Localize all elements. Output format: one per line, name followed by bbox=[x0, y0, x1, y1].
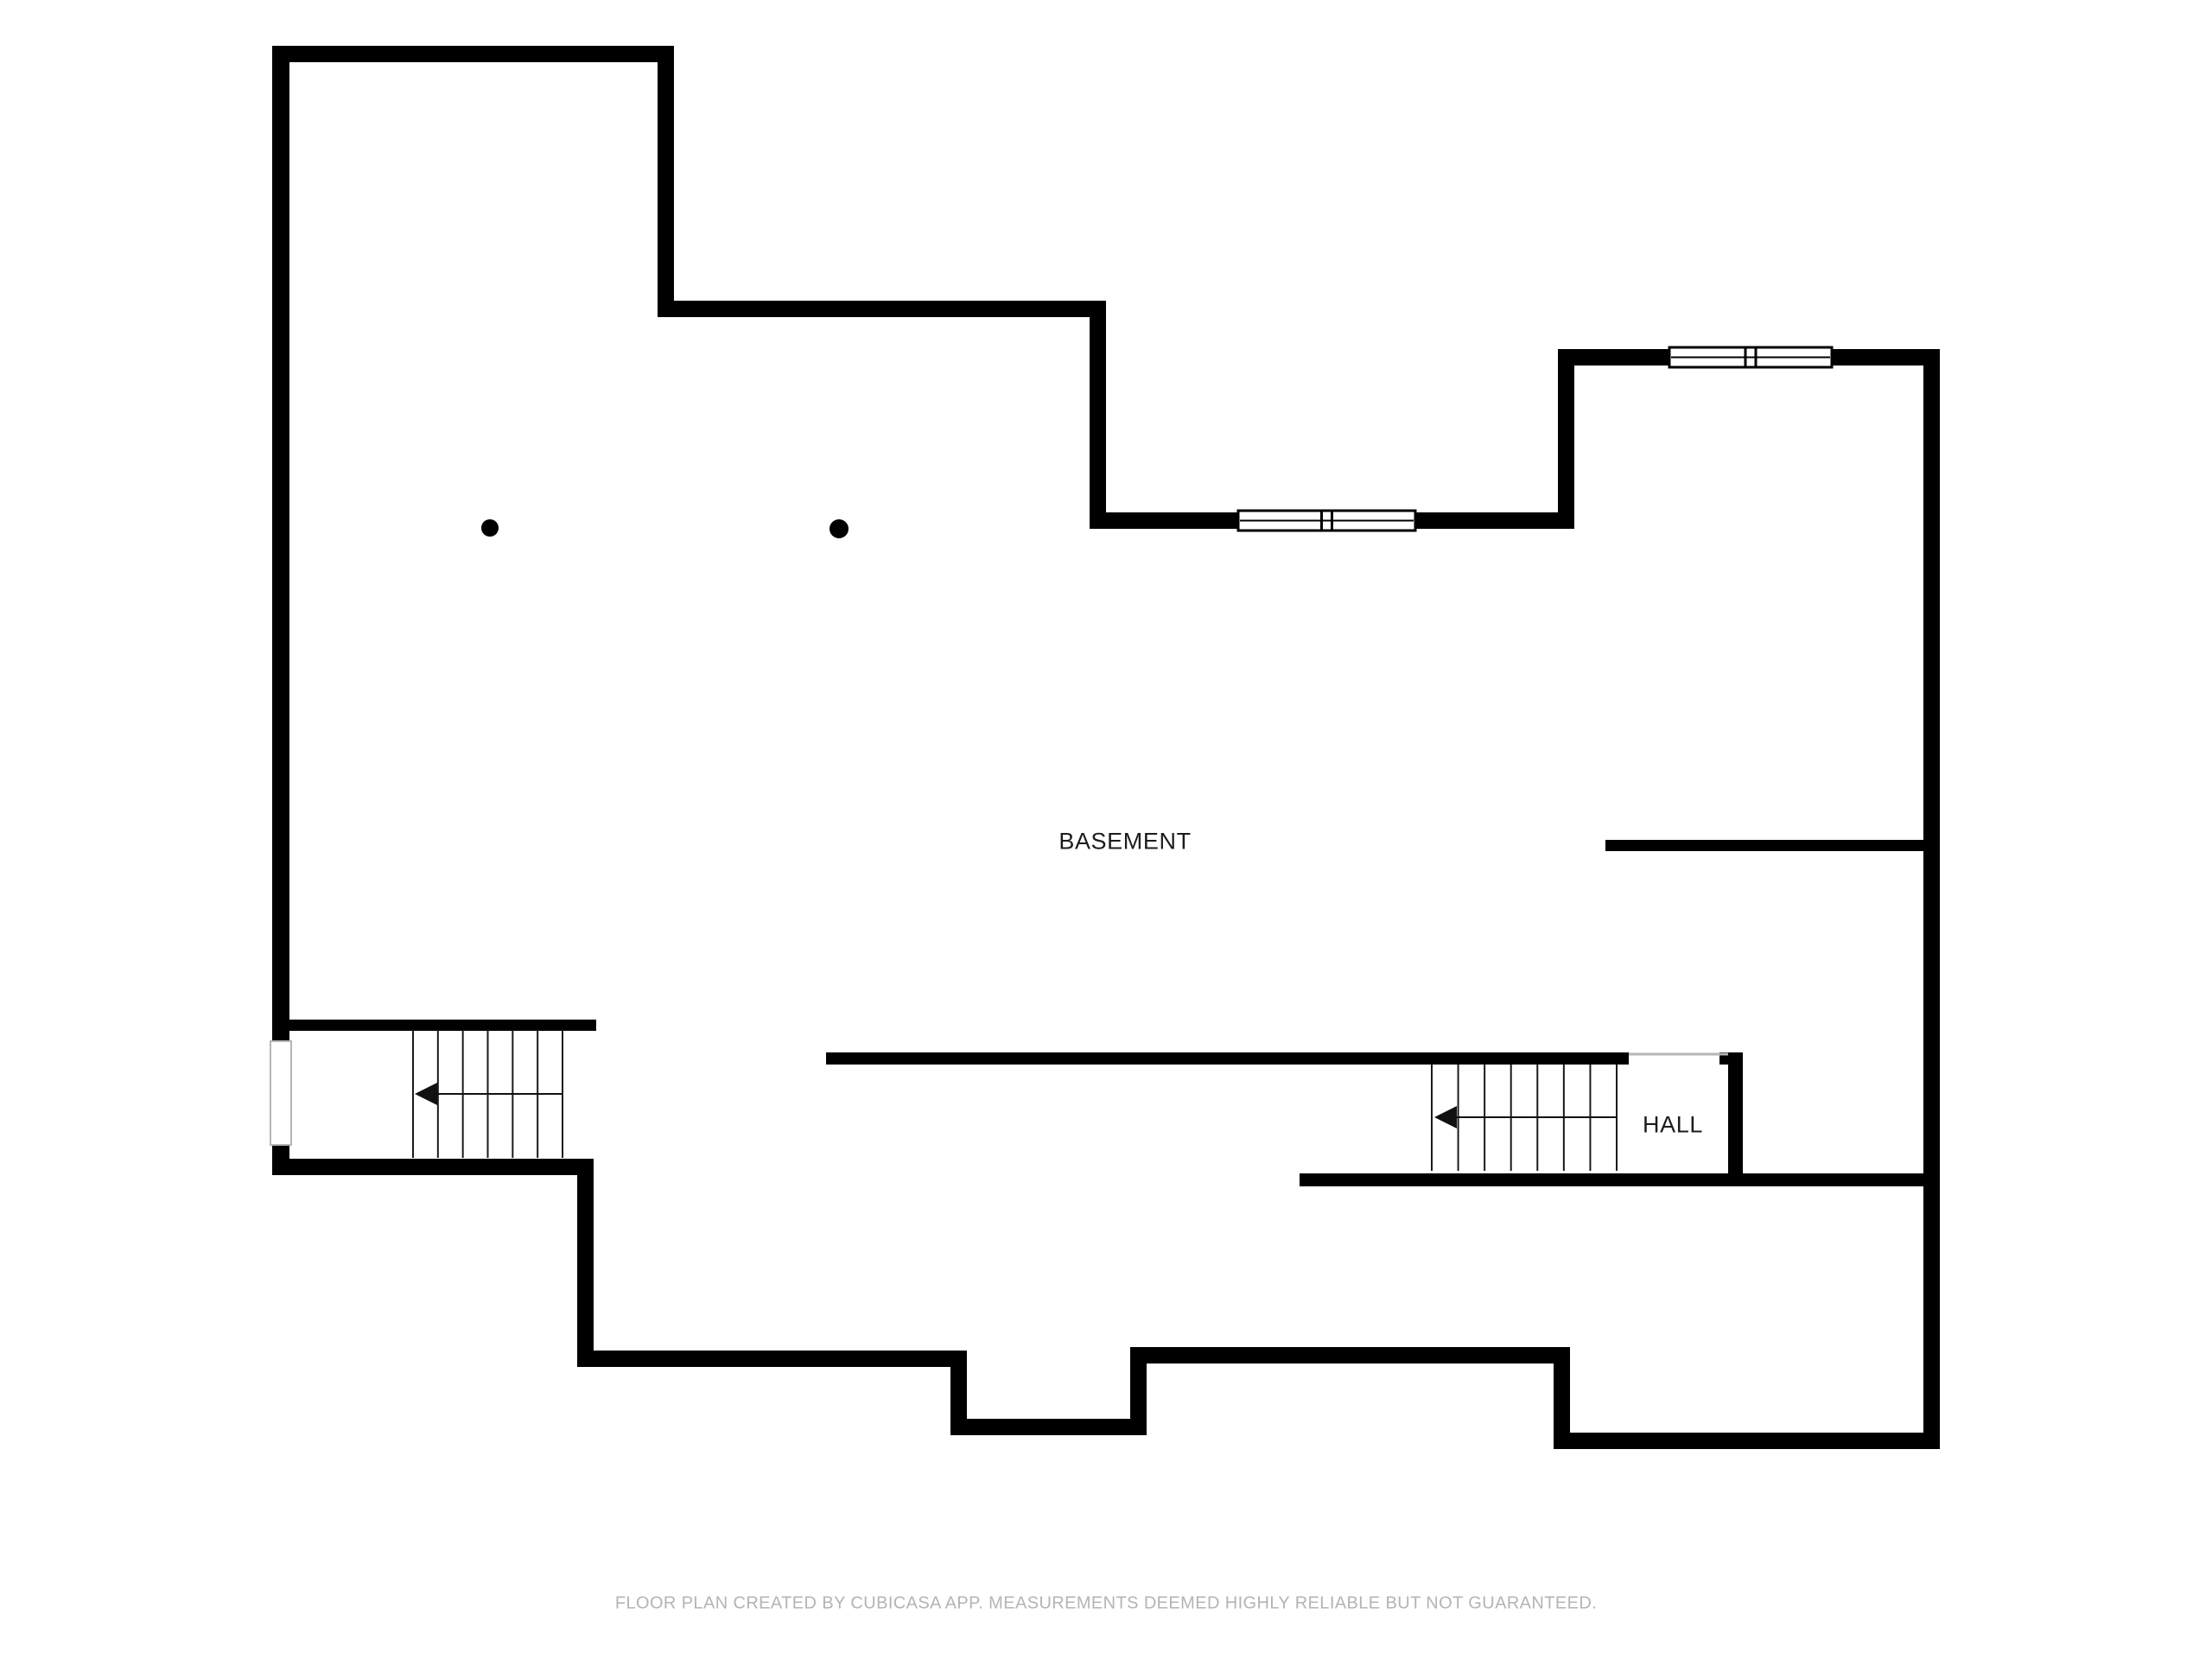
wall-step-upper-mid bbox=[658, 301, 1106, 317]
wall-connector-down-1 bbox=[1090, 301, 1106, 529]
wall-bottom-right bbox=[1554, 1433, 1940, 1449]
stairs-right-arrow-head bbox=[1434, 1106, 1457, 1128]
wall-stair-top-interior bbox=[289, 1020, 596, 1031]
column-2 bbox=[829, 519, 849, 538]
left-door-opening bbox=[270, 1041, 291, 1145]
column-1 bbox=[481, 519, 499, 537]
floor-plan-page: { "rooms": [ { "name": "BASEMENT", "cx":… bbox=[0, 0, 2212, 1659]
wall-top bbox=[272, 46, 674, 62]
wall-stair-bottom bbox=[272, 1159, 594, 1175]
room-label-hall: HALL bbox=[1643, 1112, 1703, 1139]
wall-bottom-mid bbox=[1130, 1347, 1570, 1363]
wall-connector-up-1 bbox=[1558, 349, 1574, 529]
wall-tl-block-right bbox=[658, 46, 674, 317]
wall-bottom-left bbox=[577, 1351, 967, 1367]
disclaimer-text: FLOOR PLAN CREATED BY CUBICASA APP. MEAS… bbox=[615, 1594, 1597, 1614]
wall-right-room-interior bbox=[1605, 840, 1924, 851]
wall-hall-south-interior bbox=[1300, 1173, 1940, 1186]
stairs-left-arrow-head bbox=[415, 1083, 437, 1105]
wall-bump-bottom bbox=[950, 1419, 1147, 1435]
wall-left-upper bbox=[272, 46, 289, 1041]
wall-hall-east-interior bbox=[1728, 1052, 1743, 1185]
wall-stair-right-drop bbox=[577, 1159, 594, 1367]
wall-basement-south-interior bbox=[826, 1052, 1629, 1065]
wall-right bbox=[1923, 349, 1940, 1449]
room-label-basement: BASEMENT bbox=[1058, 829, 1191, 855]
